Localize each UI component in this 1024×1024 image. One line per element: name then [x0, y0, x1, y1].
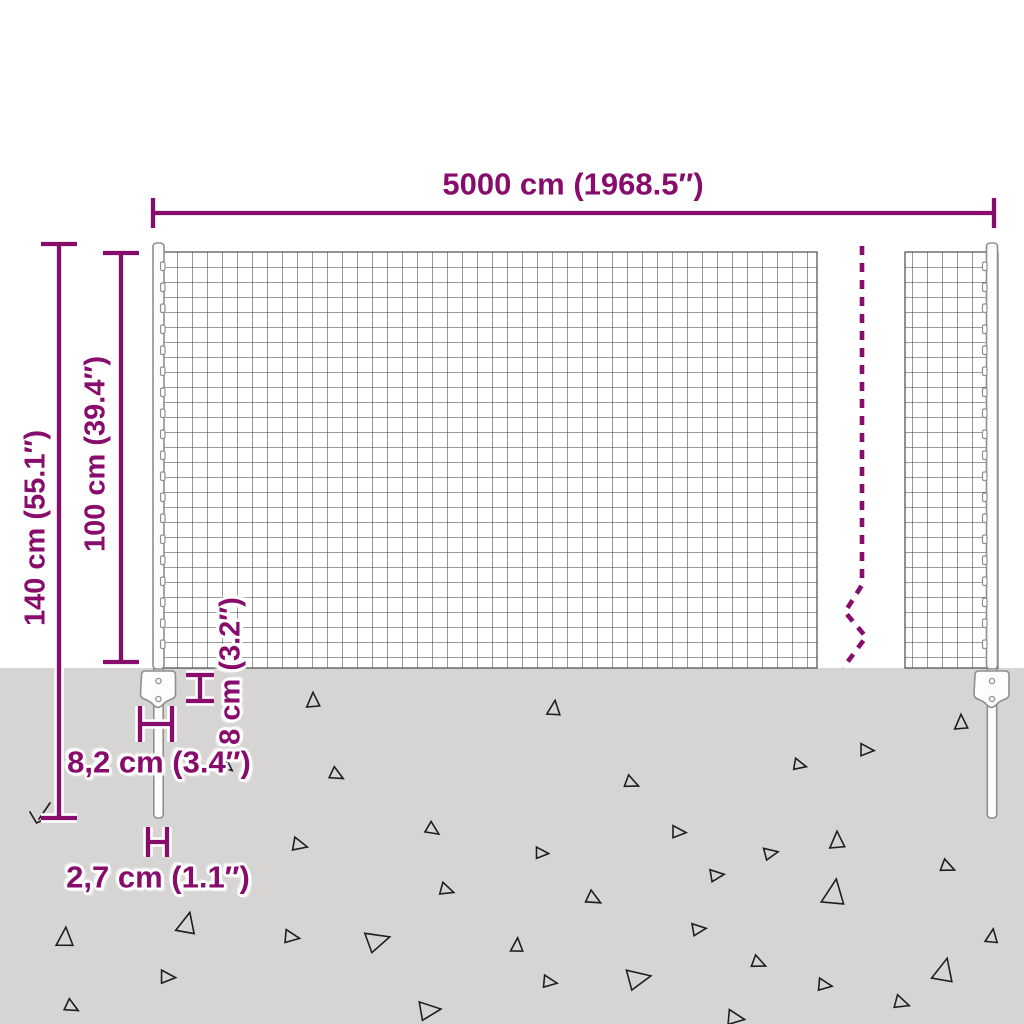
wire-clip: [983, 514, 988, 523]
wire-clip: [161, 451, 166, 460]
wire-clip: [161, 493, 166, 502]
wire-clip: [983, 325, 988, 334]
wire-clip: [983, 367, 988, 376]
wire-clip: [161, 430, 166, 439]
wire-clip: [161, 598, 166, 607]
label-anchor-depth: 8 cm (3.2″): [217, 597, 246, 745]
length-break-dashed-line: [843, 246, 866, 668]
wire-clip: [983, 451, 988, 460]
wire-clip: [983, 283, 988, 292]
mesh-panel-left: [162, 252, 817, 668]
wire-clip: [161, 262, 166, 271]
wire-clip: [983, 346, 988, 355]
wire-clip: [983, 619, 988, 628]
post: [987, 243, 998, 669]
label-above-ground-height: 100 cm (39.4″): [82, 356, 111, 552]
wire-clip: [161, 346, 166, 355]
wire-clip: [983, 535, 988, 544]
wire-clip: [161, 619, 166, 628]
wire-clip: [983, 556, 988, 565]
wire-clip: [161, 535, 166, 544]
wire-clip: [161, 472, 166, 481]
fence-dimension-diagram: 5000 cm (1968.5″) 140 cm (55.1″) 100 cm …: [0, 0, 1024, 1024]
wire-clip: [983, 493, 988, 502]
wire-clip: [161, 556, 166, 565]
wire-clip: [161, 367, 166, 376]
wire-clip: [161, 304, 166, 313]
wire-clip: [983, 430, 988, 439]
wire-clip: [161, 577, 166, 586]
dim-total-width: [153, 198, 994, 228]
wire-clip: [983, 577, 988, 586]
wire-clip: [161, 514, 166, 523]
wire-clip: [161, 409, 166, 418]
label-spike-width: 2,7 cm (1.1″): [66, 862, 250, 893]
wire-clip: [983, 640, 988, 649]
label-anchor-plate-width: 8,2 cm (3.4″): [67, 747, 251, 778]
wire-clip: [983, 388, 988, 397]
wire-clip: [983, 472, 988, 481]
label-total-width: 5000 cm (1968.5″): [442, 169, 703, 200]
wire-clip: [983, 409, 988, 418]
wire-clip: [161, 283, 166, 292]
wire-clip: [983, 598, 988, 607]
label-total-height: 140 cm (55.1″): [22, 430, 51, 626]
wire-clip: [983, 304, 988, 313]
wire-clip: [983, 262, 988, 271]
wire-clip: [161, 388, 166, 397]
wire-clip: [161, 325, 166, 334]
wire-clip: [161, 640, 166, 649]
